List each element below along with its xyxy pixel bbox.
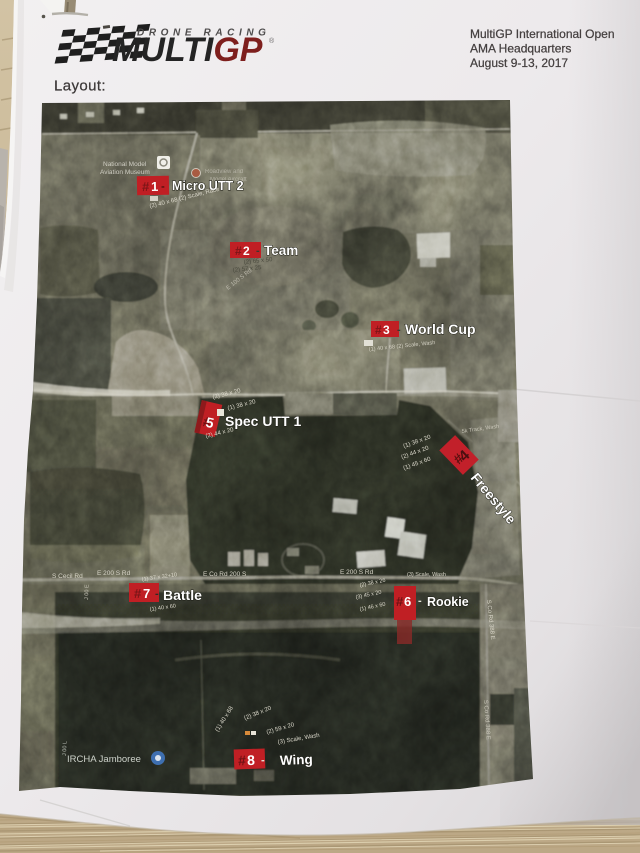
svg-text:E 200 S Rd: E 200 S Rd: [340, 569, 374, 576]
svg-text:J 00 L: J 00 L: [62, 741, 69, 756]
svg-text:AMA Headquarters: AMA Headquarters: [470, 42, 571, 56]
svg-text:#: #: [134, 586, 142, 601]
svg-text:6: 6: [404, 594, 411, 609]
svg-text:National Model: National Model: [103, 161, 147, 168]
svg-text:Spec UTT 1: Spec UTT 1: [225, 413, 301, 429]
svg-text:MULTIGP: MULTIGP: [112, 31, 263, 69]
svg-text:E 200 S Rd: E 200 S Rd: [97, 570, 131, 577]
svg-text:Rookie: Rookie: [427, 595, 469, 609]
svg-text:MultiGP International Open: MultiGP International Open: [470, 27, 615, 41]
svg-text:(3) Scale, Wash: (3) Scale, Wash: [407, 572, 446, 578]
svg-text:#: #: [235, 244, 242, 258]
svg-text:-: -: [256, 245, 260, 257]
svg-text:-: -: [418, 595, 422, 607]
svg-text:Team: Team: [264, 243, 298, 258]
svg-text:®: ®: [269, 37, 275, 45]
svg-text:#: #: [142, 179, 150, 194]
svg-text:7: 7: [143, 586, 150, 601]
svg-text:Battle: Battle: [163, 587, 202, 603]
svg-text:-: -: [161, 181, 165, 193]
svg-text:-: -: [397, 324, 401, 336]
svg-text:-: -: [155, 588, 159, 600]
svg-text:Roadview and: Roadview and: [205, 169, 243, 175]
svg-text:8: 8: [247, 752, 256, 768]
svg-text:1: 1: [151, 179, 158, 194]
svg-text:August 9-13, 2017: August 9-13, 2017: [470, 56, 568, 70]
svg-text:Wing: Wing: [280, 752, 313, 768]
svg-text:Layout:: Layout:: [54, 78, 106, 95]
svg-text:#: #: [396, 594, 404, 609]
svg-text:#: #: [375, 323, 382, 337]
svg-text:S Cecil Rd: S Cecil Rd: [52, 573, 83, 580]
svg-text:#: #: [238, 752, 247, 768]
svg-text:3: 3: [383, 323, 390, 337]
svg-text:2: 2: [243, 244, 250, 258]
svg-text:J 00 E: J 00 E: [84, 584, 91, 600]
svg-text:Aviation Museum: Aviation Museum: [100, 169, 150, 176]
svg-text:IRCHA Jamboree: IRCHA Jamboree: [67, 754, 141, 765]
svg-text:World Cup: World Cup: [405, 321, 476, 337]
svg-text:E Co Rd 200 S: E Co Rd 200 S: [203, 571, 247, 578]
